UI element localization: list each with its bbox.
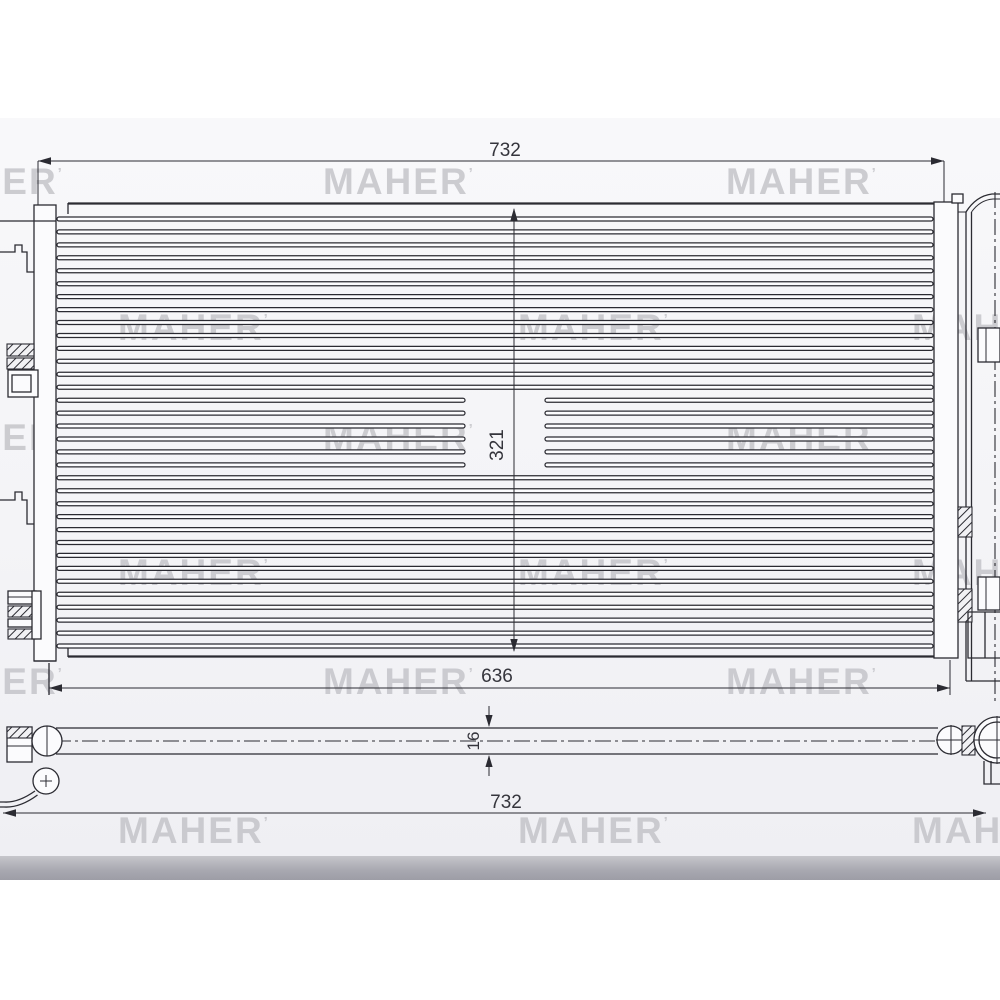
dimension-bottom-width: 732 <box>3 792 986 817</box>
tube-fin-line <box>57 424 465 428</box>
tube-fin-line <box>57 489 933 493</box>
right-tank-body <box>934 202 958 658</box>
maher-watermark-mark: ’ <box>469 665 475 682</box>
maher-watermark: MAHER’ <box>118 307 270 348</box>
profile-left-fitting <box>0 726 62 807</box>
left-fitting-lower <box>8 591 41 639</box>
tube-fin-line <box>545 450 933 454</box>
tube-fin-line <box>57 217 933 221</box>
arrowhead-right <box>931 157 944 164</box>
maher-watermark: MAHER’ <box>0 661 64 702</box>
tube-fin-line <box>545 411 933 415</box>
scanned-technical-drawing: MAHER’MAHER’MAHER’MAHER’MAHER’MAHER’MAHE… <box>0 0 1000 1000</box>
maher-watermark: MAHER’ <box>518 307 670 348</box>
maher-watermark: MAHER’ <box>0 161 64 202</box>
maher-watermark-mark: ’ <box>58 665 64 682</box>
dim-label-bottom-width: 732 <box>490 792 522 813</box>
dim-label-thickness: 16 <box>464 732 483 751</box>
tube-fin-line <box>57 528 933 532</box>
maher-watermark-mark: ’ <box>58 165 64 182</box>
left-fitting-upper <box>7 344 38 397</box>
arrowhead-right <box>937 684 950 691</box>
tube-fin-line <box>57 295 933 299</box>
tube-fin-line <box>57 243 933 247</box>
tube-fin-line <box>57 592 933 596</box>
fitting-flange-inner <box>12 375 31 392</box>
tube-fin-line <box>57 476 933 480</box>
maher-watermark-mark: ’ <box>469 421 475 438</box>
drier-connector-hatch <box>958 589 972 622</box>
drier-bottom-bracket <box>984 761 1000 784</box>
condenser-drawing: MAHER’MAHER’MAHER’MAHER’MAHER’MAHER’MAHE… <box>0 0 1000 1000</box>
tube-fin-line <box>57 553 933 557</box>
receiver-drier <box>958 192 1000 702</box>
maher-watermark: MAHER’ <box>726 661 878 702</box>
tube-fin-line <box>57 579 933 583</box>
dim-label-lower-width: 636 <box>481 666 513 687</box>
tube-fin-line <box>57 644 933 648</box>
maher-watermark: MAHER’ <box>118 810 270 851</box>
arrowhead-left <box>3 809 16 816</box>
maher-watermark: MAHER’ <box>118 552 270 593</box>
tube-fin-line <box>57 463 465 467</box>
pipe-hook <box>0 791 38 807</box>
maher-watermark-mark: ’ <box>872 165 878 182</box>
right-tank-top-tab <box>952 194 963 203</box>
fitting-hatch-block <box>7 344 34 356</box>
dim-label-top-width: 732 <box>489 140 521 161</box>
tube-fin-line <box>57 372 933 376</box>
fitting-hatch-block <box>7 358 34 369</box>
maher-watermark: MAHER’ <box>726 161 878 202</box>
tube-fin-line <box>57 605 933 609</box>
maher-watermark-mark: ’ <box>664 311 670 328</box>
tube-fin-line <box>57 359 933 363</box>
profile-right-fitting <box>936 716 1000 784</box>
tube-fin-line <box>57 437 465 441</box>
fitting-hatch <box>7 727 32 738</box>
tube-fin-line <box>57 334 933 338</box>
tube-fin-line <box>57 321 933 325</box>
maher-watermark-mark: ’ <box>264 814 270 831</box>
fitting-tab <box>32 591 41 639</box>
drier-mid-fitting <box>978 328 1000 362</box>
tube-fin-line <box>57 398 465 402</box>
tube-fin-line <box>57 346 933 350</box>
maher-watermark: MAHER’ <box>912 810 1000 851</box>
tube-fin-line <box>57 385 933 389</box>
tube-fin-line <box>57 450 465 454</box>
arrowhead-up <box>510 208 517 221</box>
tube-fin-line <box>57 515 933 519</box>
maher-watermark-mark: ’ <box>872 665 878 682</box>
tube-fin-line <box>57 256 933 260</box>
maher-watermark-mark: ’ <box>664 814 670 831</box>
tube-fin-line <box>57 230 933 234</box>
tube-fin-line <box>545 463 933 467</box>
drier-connector-hatch <box>958 507 972 537</box>
tube-fin-line <box>57 411 465 415</box>
tube-fin-line <box>545 437 933 441</box>
maher-watermark: MAHER’ <box>518 552 670 593</box>
tube-fin-line <box>57 541 933 545</box>
tube-fin-line <box>545 424 933 428</box>
tube-fin-line <box>57 502 933 506</box>
maher-watermark: MAHER’ <box>323 161 475 202</box>
left-bracket-lower <box>0 492 34 524</box>
arrowhead-down <box>485 715 492 727</box>
drier-side-fitting <box>978 577 1000 610</box>
arrowhead-up <box>485 755 492 767</box>
tube-fin-line <box>57 282 933 286</box>
maher-watermark-mark: ’ <box>469 165 475 182</box>
tube-fin-line <box>57 308 933 312</box>
dim-label-core-height: 321 <box>487 429 508 461</box>
tube-fin-line <box>57 631 933 635</box>
tube-fin-line <box>57 269 933 273</box>
maher-watermark: MAHER’ <box>518 810 670 851</box>
tube-fin-line <box>57 566 933 570</box>
dimension-core-height: 321 <box>487 208 518 652</box>
maher-watermark-mark: ’ <box>264 311 270 328</box>
tube-fin-line <box>57 618 933 622</box>
maher-watermark: MAHER’ <box>323 661 475 702</box>
condenser-side-profile-view: 16 732 <box>0 706 1000 817</box>
tube-fin-line <box>545 398 933 402</box>
